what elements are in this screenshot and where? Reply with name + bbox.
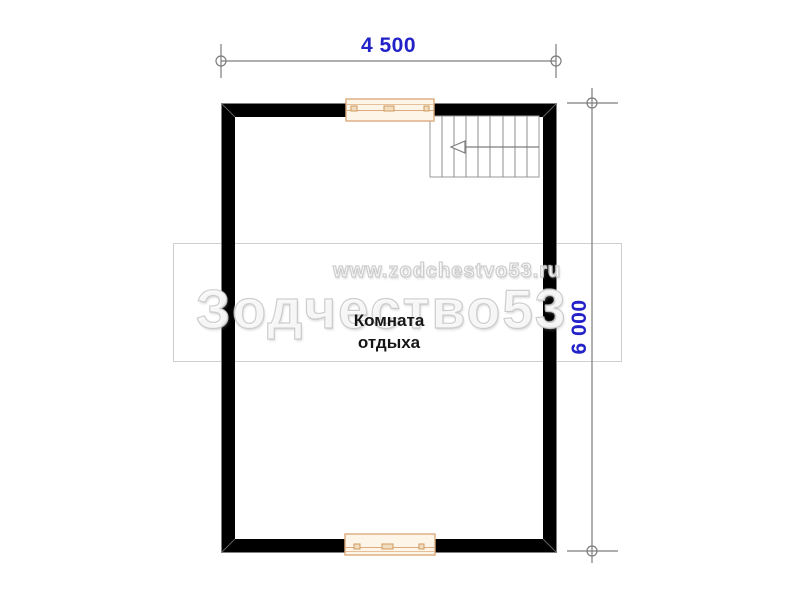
staircase [430,116,539,177]
dimension-width-label: 4 500 [221,34,556,58]
room-label: Комната отдыха [222,310,556,354]
room-label-line1: Комната [222,310,556,332]
room-label-line2: отдыха [222,332,556,354]
dimension-height-label: 6 000 [568,299,592,354]
window-top [346,99,434,121]
watermark-url-text: www.zodchestvo53.ru [333,260,561,283]
window-bottom [345,534,435,555]
floor-plan-canvas: Зодчество53 www.zodchestvo53.ru 4 500 6 … [0,0,800,600]
